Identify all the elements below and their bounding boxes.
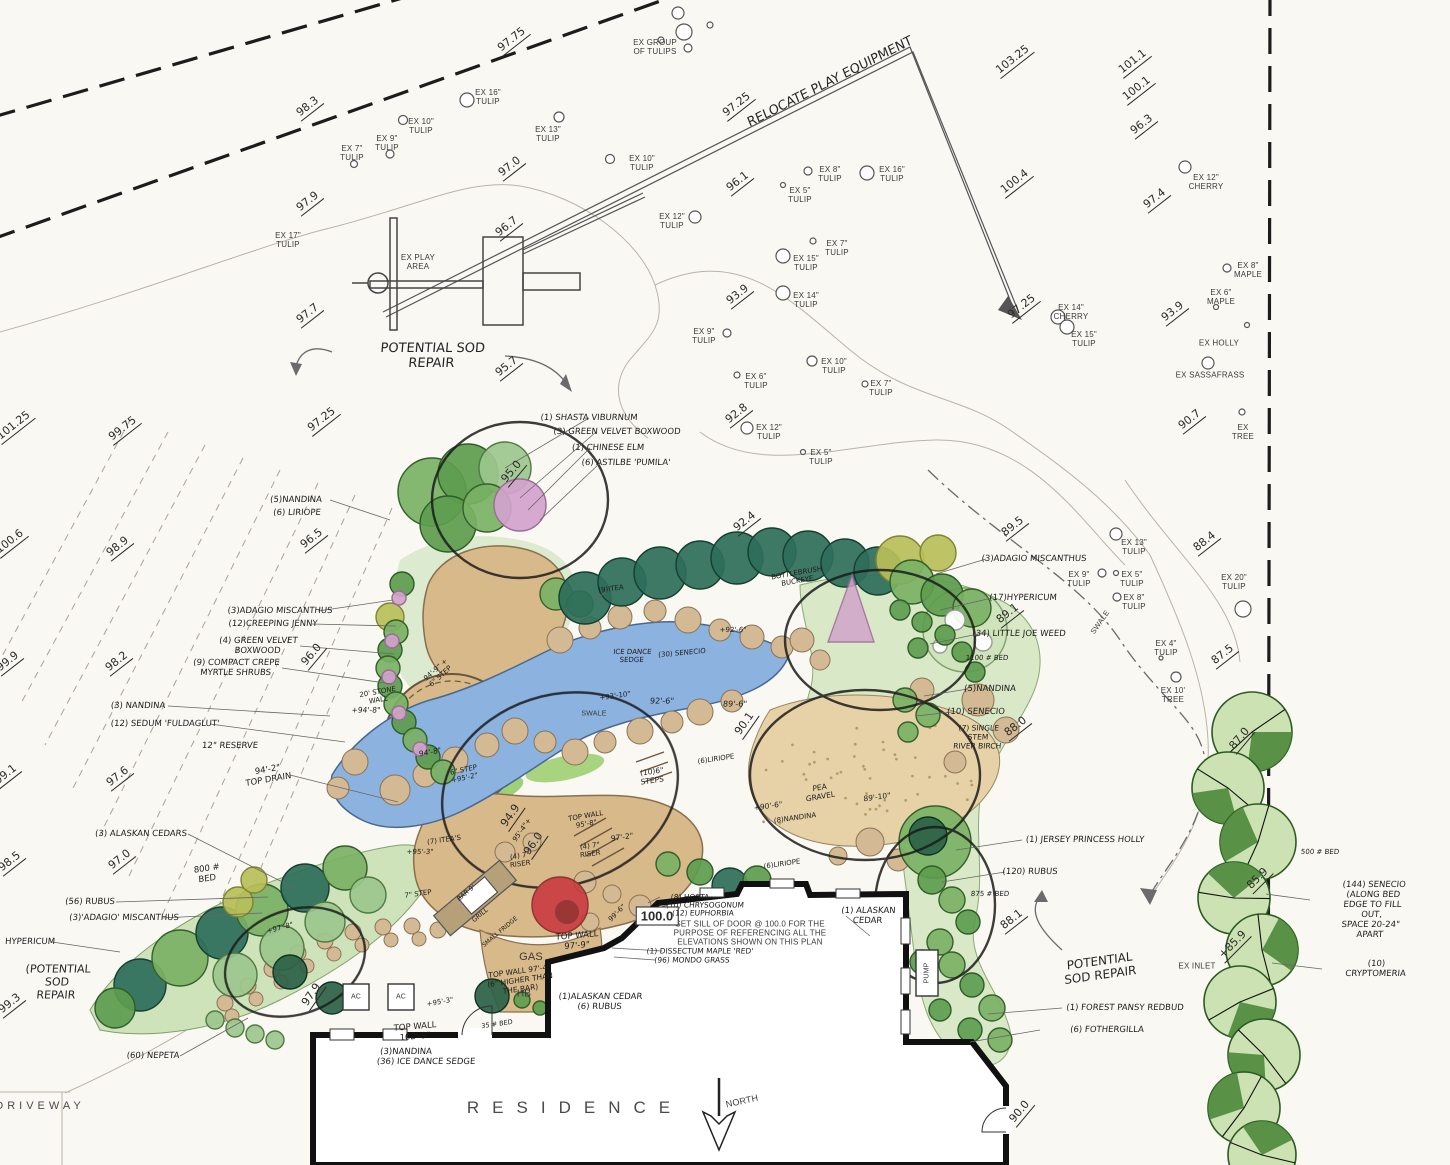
plan-label: (4) 7" RISER [579,841,600,860]
spot-elevation: 93.9 [722,280,754,309]
spot-elevation: 90.0 [1005,1096,1035,1127]
tree-tag: EX 8" TULIP [818,165,842,183]
tree-tag: EX TREE [1232,423,1254,441]
plan-label: (5)NANDINA [964,684,1017,694]
spot-elevation: 90.7 [1174,405,1206,434]
plan-label: 12" RESERVE [202,741,259,751]
spot-elevation: 99.3 [0,989,26,1018]
plan-label: +95'-3" [406,848,434,856]
plan-label: 94'-8" [419,746,442,759]
plan-label: (144) SENECIO (ALONG BED EDGE TO FILL OU… [1330,880,1413,940]
spot-elevation: 99.1 [0,760,22,789]
plan-label: +92'-6" [719,626,747,634]
plan-label: TOP WALL 95'-8" [568,809,604,831]
plan-label: (10)6" STEPS [640,765,664,786]
tree-tag: EX 9" TULIP [1067,570,1091,588]
tree-tag: EX 16" TULIP [475,88,501,106]
tree-tag: EX 13" TULIP [1121,538,1147,556]
tree-tag: SET SILL OF DOOR @ 100.0 FOR THE PURPOSE… [674,920,827,947]
plan-label: (3)NANDINA [380,1047,433,1057]
tree-tag: EX 10' TREE [1161,686,1186,704]
plan-label: (1) FOREST PANSY REDBUD [1066,1003,1184,1013]
plan-label: (3) ALASKAN CEDARS [95,829,188,839]
tree-tag: EX 6" MAPLE [1207,288,1235,306]
tree-tag: EX 12" CHERRY [1189,173,1224,191]
plan-label: (1) CHINESE ELM [571,443,644,453]
plan-label: SMALL FRIDGE [481,915,519,949]
plan-label: 97'-2" [611,831,634,843]
spot-elevation: 98.2 [101,647,133,676]
spot-elevation: 96.7 [491,212,523,241]
plan-label: RELOCATE PLAY EQUIPMENT [745,33,914,130]
spot-elevation: 89.5 [997,512,1029,541]
spot-elevation: 101.25 [0,407,35,445]
tree-tag: EX 9" TULIP [692,327,716,345]
spot-elevation: 103.25 [992,41,1035,79]
plan-label: 94'-9" + 6" STEP [422,657,453,689]
plan-label: (7) ITEA'S [427,834,461,847]
spot-elevation: 96.5 [296,524,328,553]
spot-elevation: 98.3 [292,92,324,121]
spot-elevation: 98.9 [102,532,134,561]
plan-label: 20' STONE WALL [359,685,397,707]
spot-elevation: 97.7 [292,299,324,328]
tree-tag: EX SASSAFRASS [1176,371,1245,380]
plan-label: TOP WALL 97'-4" (6" HIGHER THAN THE BAR) [487,962,554,998]
plan-label: (3)'ADAGIO' MISCANTHUS [69,913,179,923]
plan-label: RESIDENCE [467,1098,683,1118]
tree-tag: EX PLAY AREA [401,253,435,271]
tree-tag: EX 16" TULIP [879,165,905,183]
tree-tag: EX 20" TULIP [1221,573,1247,591]
tree-tag: EX 12" TULIP [659,212,685,230]
spot-elevation: 88.1 [996,905,1028,934]
plan-label: BAR 9' [455,883,476,903]
spot-elevation: 97.0 [104,845,136,874]
spot-elevation: +85.9 [1214,926,1251,963]
tree-tag: EX 5" TULIP [809,448,833,466]
plan-label: (POTENTIAL SOD REPAIR [23,963,92,1002]
plan-label: POTENTIAL SOD REPAIR [1063,949,1136,987]
plan-label: 99'-6" [607,902,627,923]
plan-label: (3)ADAGIO MISCANTHUS [227,606,333,616]
plan-label: 500 # BED [1301,848,1340,856]
spot-elevation: 97.4 [1139,184,1171,213]
plan-label: (1) ALASKAN CEDAR [840,906,896,926]
plan-label: (12) SEDUM 'FULDAGLUT' [110,719,219,729]
tree-tag: EX 10" TULIP [821,357,847,375]
plan-label: (9) COMPACT CREPE MYRTLE SHRUBS [192,658,280,678]
plan-label: (4) 7" RISER [509,851,530,870]
spot-elevation: 97.9 [292,187,324,216]
tree-tag: SWALE [581,711,606,718]
plan-label: GRILL [471,906,490,925]
spot-elevation: 93.9 [1157,297,1189,326]
spot-elevation: 92.4 [729,507,761,536]
tree-tag: SWALE [1089,608,1112,635]
spot-elevation: 97.0 [494,152,526,181]
plan-label: (17)HYPERICUM [989,593,1057,603]
spot-elevation: 97.6 [102,762,134,791]
tree-tag: EX 5" TULIP [1120,570,1144,588]
spot-elevation: 87.0 [1225,723,1255,754]
spot-elevation: 97.25 [303,403,340,437]
plan-label: 1100 # BED [965,654,1008,662]
plan-label: (96) MONDO GRASS [654,956,730,965]
plan-label: (120) RUBUS [1002,867,1058,877]
plan-label: (6)LIRIOPE [763,857,800,870]
plan-label: TOP WALL 97'-9" [556,929,599,953]
spot-elevation: 92.8 [721,399,753,428]
plan-label: 875 # BED [971,890,1010,898]
tree-tag: EX 9" TULIP [375,134,399,152]
plan-label: (12)CREEPING JENNY [228,619,318,629]
tree-tag: AC [396,994,406,1001]
plan-label: (3) NANDINA [110,701,165,711]
plan-label: (7) SINGLE STEM RIVER BIRCH [953,724,1003,751]
plan-label: ICE DANCE SEDGE [612,648,652,664]
plan-label: (1)ALASKAN CEDAR (6) RUBUS [557,992,642,1012]
plan-label: (6) ASTILBE 'PUMILA' [581,458,671,468]
plan-label: +94'-8" [351,706,381,715]
plan-label: (8)NANDINA [774,811,817,825]
plan-label: (3)ADAGIO MISCANTHUS [981,554,1087,564]
plan-label: TOP WALL 102'-9" [394,1020,437,1044]
spot-elevation: 100.6 [0,525,29,559]
plan-label: BOTTLEBRUSH BUCKEYE [771,565,823,590]
plan-label: (36) ICE DANCE SEDGE [376,1057,475,1067]
plan-label: (6) FOTHERGILLA [1070,1025,1145,1035]
plan-label: (5)NANDINA [270,495,323,505]
spot-elevation: 95.7 [491,352,523,381]
spot-elevation: 97.25 [1003,290,1040,324]
plan-label: +97'-8" [266,921,293,936]
spot-elevation: 96.0 [297,639,327,670]
spot-elevation: 97.9 [298,979,327,1011]
plan-label: PEA GRAVEL [805,780,836,803]
tree-tag: EX 15" TULIP [1071,330,1097,348]
plan-label: 92'-6" [650,697,675,706]
plan-label: (6)LIRIOPE [697,752,734,765]
plan-label: (56) RUBUS [65,897,116,907]
tree-tag: GAS [519,951,543,963]
spot-elevation: 100.4 [996,165,1033,199]
tree-tag: EX 13" TULIP [535,125,561,143]
plan-label: (1) DISSECTUM MAPLE 'RED' [646,947,753,956]
spot-elevation: 89.1 [992,599,1024,628]
plan-label: (9)ITEA [598,583,624,595]
tree-tag: EX 10" TULIP [629,154,655,172]
plan-label: +90'-6" [753,799,782,812]
tree-tag: EX GROUP OF TULIPS [633,38,677,56]
plan-label: (60) NEPETA [126,1051,180,1061]
tree-tag: EX INLET [1178,962,1215,971]
plan-label: (3) GREEN VELVET BOXWOOD [553,427,681,437]
plan-label: 800 # BED [194,862,221,886]
tree-tag: PUMP [924,962,931,983]
plan-label: HYPERICUM [5,937,56,947]
spot-elevation: 99.75 [104,412,141,446]
tree-tag: EX 15" TULIP [793,254,819,272]
plan-label: (1) JERSEY PRINCESS HOLLY [1025,835,1144,845]
tree-tag: EX 7" TULIP [340,144,364,162]
spot-elevation: 97.75 [493,23,530,57]
spot-elevation: 96.3 [1126,110,1158,139]
tree-tag: EX 6" TULIP [744,372,768,390]
spot-elevation: 99.9 [0,647,24,676]
plan-label: 89'-6" [723,700,748,709]
tree-tag: EX 12" TULIP [756,423,782,441]
plan-label: (6) LIRIOPE [273,508,321,518]
tree-tag: EX 14" CHERRY [1054,303,1089,321]
tree-tag: EX 7" TULIP [825,239,849,257]
tree-tag: EX 10" TULIP [408,117,434,135]
plan-label: (4) GREEN VELVET BOXWOOD [218,636,298,656]
spot-elevation: 87.5 [1207,640,1239,669]
plan-label: (30) SENECIO [658,647,705,659]
plan-label: 35 # BED [481,1018,513,1030]
spot-elevation: 88.4 [1189,527,1221,556]
plan-label: (10) SENECIO [947,707,1006,717]
tree-tag: AC [351,994,361,1001]
tree-tag: NORTH [725,1093,759,1110]
spot-elevation: 88.0 [1000,712,1032,741]
plan-label: (1) SHASTA VIBURNUM [540,413,638,423]
plan-label: (34) LITTLE JOE WEED [972,629,1066,639]
plan-label: DRIVEWAY [0,1100,85,1112]
landscape-plan: 97.7598.397.097.996.797.797.25103.2596.1… [0,0,1450,1165]
tree-tag: EX 7" TULIP [869,379,893,397]
plan-label: 94'-2" TOP DRAIN [244,761,292,789]
plan-label: (10) CRYPTOMERIA [1338,959,1414,979]
spot-elevation: 90.1 [731,708,760,740]
plan-label: 6" STEP +95'-2" [450,763,479,785]
plan-label: +93'-10" [599,690,630,702]
spot-elevation: 96.1 [722,167,754,196]
tree-tag: EX 14" TULIP [793,291,819,309]
tree-tag: EX 17" TULIP [275,231,301,249]
tree-tag: EX 8" TULIP [1122,593,1146,611]
spot-elevation: 85.9 [1243,864,1274,895]
labels-layer: 97.7598.397.097.996.797.797.25103.2596.1… [0,0,1450,1165]
tree-tag: EX 4" TULIP [1154,639,1178,657]
tree-tag: EX HOLLY [1199,339,1239,348]
plan-label: 89'-10" [863,791,891,804]
spot-elevation: 95.0 [497,456,527,487]
plan-label: 7" STEP [404,888,431,900]
plan-label: (12) EUPHORBIA [672,909,735,918]
tree-tag: EX 8" MAPLE [1234,261,1262,279]
plan-label: POTENTIAL SOD REPAIR [378,341,485,371]
plan-label: +95'-3" [426,996,453,1009]
tree-tag: EX 5" TULIP [788,186,812,204]
spot-elevation: 98.5 [0,847,26,876]
